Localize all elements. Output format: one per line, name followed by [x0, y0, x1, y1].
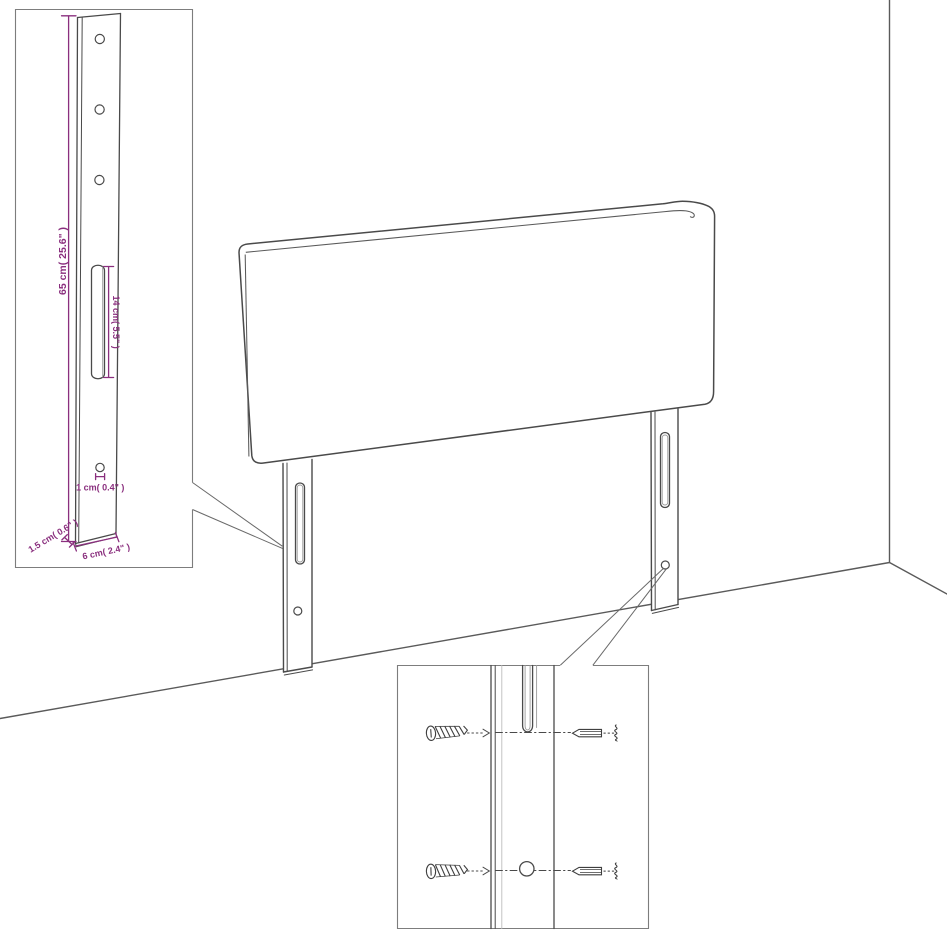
detail-slot	[523, 666, 533, 732]
inset-mounting-detail	[398, 666, 649, 929]
left-leg-hole	[294, 607, 302, 615]
right-leg	[651, 409, 679, 613]
post-hole-middle	[95, 105, 104, 114]
headboard-diagram: 65 cm( 25.6" ) 14 cm( 5.5" ) 1 cm( 0.4" …	[0, 0, 947, 947]
post-hole-lower	[95, 175, 104, 184]
wall-plug-icon	[573, 863, 618, 880]
label-thickness: 1.5 cm( 0.6" )	[26, 517, 79, 554]
hardware	[426, 724, 617, 880]
label-width: 6 cm( 2.4" )	[82, 542, 131, 562]
arrow-upper-icon	[483, 729, 489, 737]
headboard-panel	[239, 201, 715, 463]
arrow-lower-icon	[483, 867, 489, 875]
label-height: 65 cm( 25.6" )	[57, 227, 69, 295]
right-leg-hole	[661, 561, 669, 569]
screw-icon	[426, 863, 468, 879]
inset-leg-detail: 65 cm( 25.6" ) 14 cm( 5.5" ) 1 cm( 0.4" …	[16, 10, 193, 568]
post-hole-bottom	[96, 463, 104, 471]
label-hole-diameter: 1 cm( 0.4" )	[76, 483, 124, 493]
callout-left	[193, 483, 283, 549]
post-hole-top	[95, 34, 104, 43]
floor-line-left	[0, 563, 890, 719]
screw-icon	[426, 724, 468, 741]
wall-plug-icon	[573, 725, 618, 742]
diagram-canvas: 65 cm( 25.6" ) 14 cm( 5.5" ) 1 cm( 0.4" …	[0, 0, 947, 947]
floor-line-right	[890, 563, 947, 595]
left-leg	[283, 460, 313, 676]
detail-hole	[520, 862, 534, 876]
panel-outline	[239, 201, 715, 463]
label-slot-length: 14 cm( 5.5" )	[111, 296, 121, 349]
